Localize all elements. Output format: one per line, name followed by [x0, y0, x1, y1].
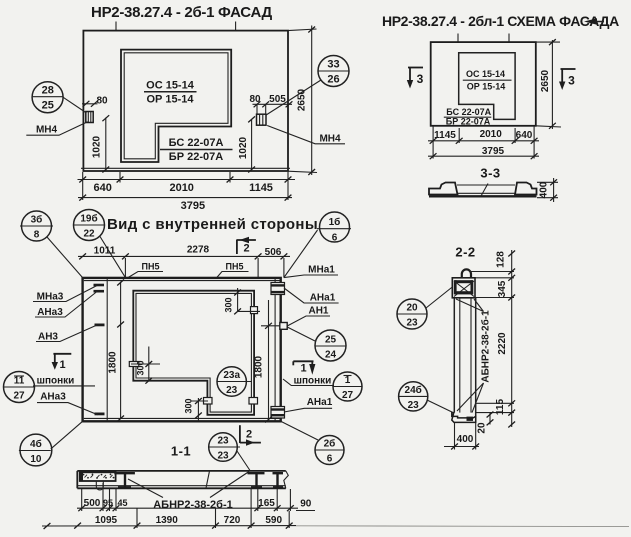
svg-text:4б: 4б: [30, 438, 42, 450]
svg-text:24б: 24б: [405, 384, 422, 396]
svg-text:25: 25: [325, 335, 337, 346]
svg-text:6: 6: [327, 454, 333, 465]
svg-text:400: 400: [539, 181, 550, 198]
svg-text:МН4: МН4: [319, 134, 341, 145]
svg-text:ОР 15-14: ОР 15-14: [146, 94, 194, 106]
svg-text:АБНР2-38-2б-1: АБНР2-38-2б-1: [480, 310, 492, 383]
svg-text:33: 33: [327, 59, 339, 71]
svg-text:ОР 15-14: ОР 15-14: [467, 82, 506, 92]
svg-text:1б: 1б: [329, 216, 341, 228]
svg-text:1020: 1020: [238, 136, 249, 159]
svg-text:45: 45: [117, 498, 127, 508]
svg-text:1-1: 1-1: [171, 444, 191, 459]
svg-text:1: 1: [345, 375, 351, 386]
svg-text:1145: 1145: [434, 130, 456, 141]
svg-text:1095: 1095: [95, 515, 118, 526]
svg-text:27: 27: [13, 391, 25, 402]
svg-text:ПН5: ПН5: [142, 262, 160, 272]
svg-text:80: 80: [249, 94, 261, 105]
svg-text:2278: 2278: [187, 245, 210, 256]
svg-text:25: 25: [42, 100, 54, 112]
svg-text:2-2: 2-2: [455, 245, 475, 260]
svg-text:шпонки: шпонки: [37, 376, 75, 387]
svg-text:АН3: АН3: [38, 332, 58, 343]
svg-text:ПН5: ПН5: [226, 262, 244, 272]
svg-text:1011: 1011: [94, 246, 116, 257]
svg-text:80: 80: [96, 96, 108, 107]
svg-text:10: 10: [30, 454, 42, 465]
svg-text:400: 400: [457, 434, 474, 445]
svg-text:8: 8: [34, 230, 40, 241]
svg-text:3795: 3795: [482, 146, 505, 157]
svg-text:23: 23: [217, 436, 229, 447]
svg-text:300: 300: [224, 297, 234, 312]
svg-text:АНа1: АНа1: [310, 293, 336, 304]
svg-text:1390: 1390: [156, 515, 179, 526]
svg-text:28: 28: [42, 85, 54, 97]
svg-text:2: 2: [243, 243, 249, 255]
svg-text:БР 22-07А: БР 22-07А: [169, 151, 223, 163]
svg-text:300: 300: [136, 360, 146, 375]
svg-text:ОС 15-14: ОС 15-14: [146, 80, 195, 92]
svg-text:2650: 2650: [540, 69, 551, 92]
svg-text:1: 1: [301, 363, 307, 375]
svg-text:АН1: АН1: [308, 306, 328, 317]
svg-text:20: 20: [476, 422, 487, 434]
svg-text:23: 23: [406, 318, 418, 329]
svg-text:24: 24: [325, 350, 337, 361]
svg-text:БС 22-07А: БС 22-07А: [169, 137, 224, 149]
svg-text:3: 3: [417, 72, 424, 86]
svg-text:МНа3: МНа3: [37, 292, 64, 303]
svg-text:АБНР2-38-2б-1: АБНР2-38-2б-1: [153, 499, 233, 511]
svg-text:ОС 15-14: ОС 15-14: [466, 69, 505, 79]
svg-text:БС 22-07А: БС 22-07А: [446, 107, 491, 117]
svg-text:23: 23: [226, 385, 238, 396]
svg-text:1: 1: [59, 359, 65, 371]
svg-text:23: 23: [408, 400, 420, 411]
svg-text:26: 26: [327, 74, 339, 86]
svg-text:1145: 1145: [249, 182, 273, 194]
svg-text:345: 345: [497, 280, 508, 297]
svg-text:3-3: 3-3: [480, 166, 500, 181]
svg-text:22: 22: [83, 229, 95, 240]
svg-text:506: 506: [265, 247, 282, 258]
svg-text:300: 300: [184, 398, 194, 413]
svg-text:1020: 1020: [92, 135, 103, 158]
svg-text:МН4: МН4: [36, 125, 58, 136]
svg-text:АНа3: АНа3: [37, 307, 63, 318]
svg-text:640: 640: [516, 130, 533, 141]
svg-text:23: 23: [217, 451, 229, 462]
svg-text:1800: 1800: [254, 355, 265, 378]
svg-text:20: 20: [406, 303, 418, 314]
svg-text:3б: 3б: [31, 214, 43, 226]
svg-text:шпонки: шпонки: [294, 375, 332, 386]
svg-text:2б: 2б: [324, 438, 336, 450]
svg-text:640: 640: [94, 182, 112, 194]
svg-text:128: 128: [496, 251, 507, 268]
svg-text:АНа1: АНа1: [307, 397, 333, 408]
svg-text:6: 6: [332, 233, 338, 244]
svg-text:590: 590: [265, 515, 282, 526]
svg-text:МНа1: МНа1: [308, 265, 335, 276]
svg-text:3: 3: [568, 74, 575, 88]
svg-text:720: 720: [224, 515, 241, 526]
svg-text:90: 90: [300, 499, 312, 510]
svg-text:500: 500: [84, 498, 101, 509]
svg-text:АНа3: АНа3: [40, 392, 66, 403]
svg-text:2650: 2650: [297, 88, 308, 111]
svg-text:2010: 2010: [480, 129, 503, 140]
svg-text:3795: 3795: [181, 200, 205, 212]
svg-text:2: 2: [246, 429, 252, 441]
svg-text:115: 115: [495, 398, 506, 415]
svg-text:11: 11: [14, 376, 25, 387]
svg-text:95: 95: [103, 498, 113, 508]
svg-text:2220: 2220: [497, 332, 508, 355]
svg-text:165: 165: [258, 498, 275, 509]
svg-text:НР2-38.27.4 - 2б-1 ФАСАД: НР2-38.27.4 - 2б-1 ФАСАД: [91, 4, 273, 21]
svg-text:23а: 23а: [223, 370, 240, 381]
svg-text:1800: 1800: [108, 351, 119, 374]
svg-text:Вид с внутренней стороны: Вид с внутренней стороны: [107, 216, 318, 233]
svg-text:БР 22-07А: БР 22-07А: [446, 117, 491, 127]
svg-text:19б: 19б: [80, 213, 97, 225]
svg-text:НР2-38.27.4 - 2бл-1 СХЕМА ФАСА: НР2-38.27.4 - 2бл-1 СХЕМА ФАСАДА: [382, 13, 619, 29]
svg-text:27: 27: [342, 390, 354, 401]
svg-text:2010: 2010: [169, 182, 193, 194]
